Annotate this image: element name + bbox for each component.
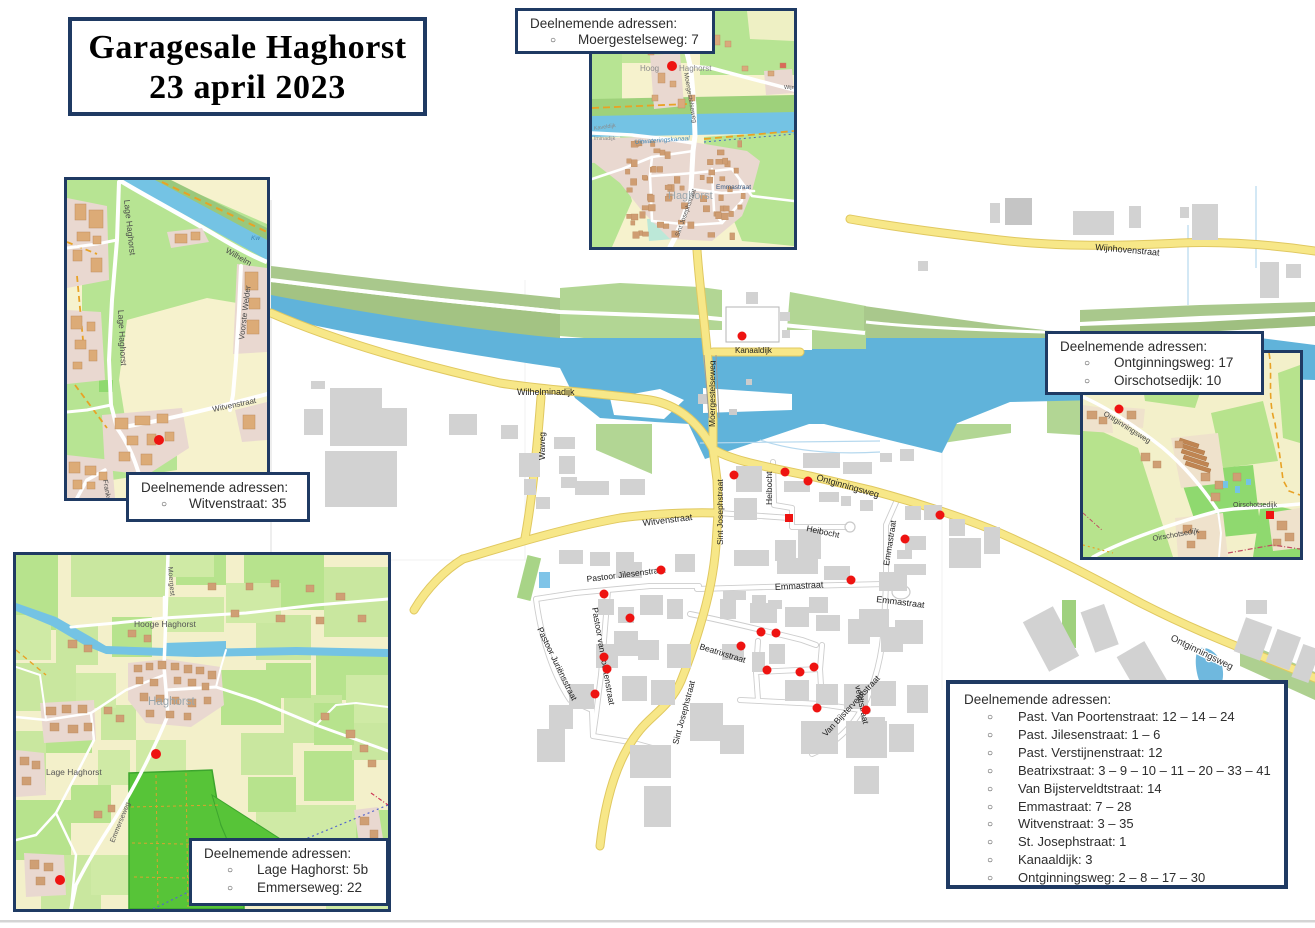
- svg-text:Emmastraat: Emmastraat: [716, 184, 751, 191]
- svg-text:Waweg: Waweg: [537, 432, 547, 460]
- svg-text:Heibocht: Heibocht: [764, 471, 774, 505]
- svg-text:Kw: Kw: [251, 235, 261, 242]
- svg-text:Hooge Haghorst: Hooge Haghorst: [134, 619, 197, 629]
- svg-text:lminadijk: lminadijk: [594, 136, 616, 142]
- svg-text:Oirschotsedijk: Oirschotsedijk: [1233, 502, 1277, 509]
- svg-text:Hoog: Hoog: [640, 64, 659, 73]
- svg-text:Lage Haghorst: Lage Haghorst: [46, 767, 102, 777]
- svg-text:Haghorst: Haghorst: [679, 64, 712, 73]
- svg-text:Wilhelminadijk: Wilhelminadijk: [517, 387, 575, 397]
- svg-text:Haghorst: Haghorst: [148, 696, 195, 708]
- svg-text:Kanaaldijk: Kanaaldijk: [735, 346, 773, 355]
- svg-text:Wijn: Wijn: [784, 85, 794, 91]
- svg-text:Sint Josephstraat: Sint Josephstraat: [715, 479, 725, 545]
